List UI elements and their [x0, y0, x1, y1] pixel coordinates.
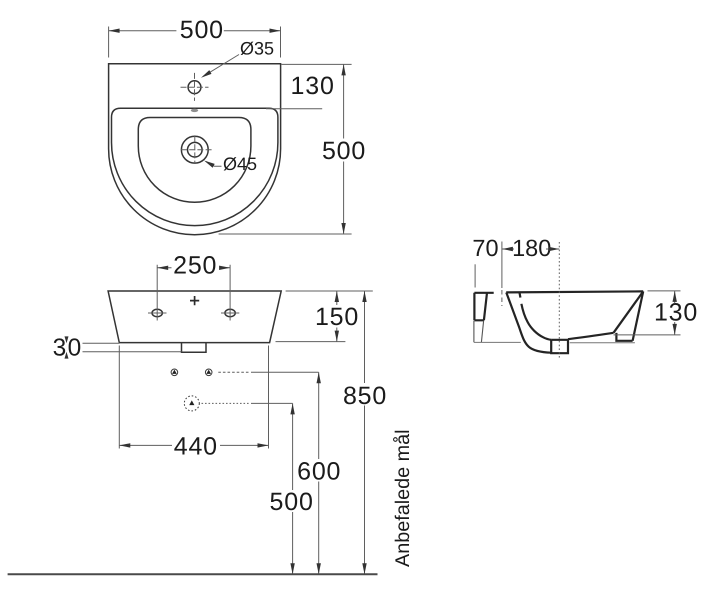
svg-text:500: 500	[322, 137, 366, 165]
svg-text:0: 0	[68, 335, 82, 362]
svg-text:Ø35: Ø35	[240, 39, 274, 59]
svg-text:Anbefalede mål: Anbefalede mål	[392, 430, 414, 567]
svg-text:850: 850	[343, 382, 387, 410]
svg-text:130: 130	[291, 72, 335, 100]
svg-text:500: 500	[270, 488, 314, 516]
svg-text:3: 3	[53, 335, 67, 362]
svg-text:440: 440	[174, 433, 218, 461]
svg-text:600: 600	[297, 458, 341, 486]
svg-text:70: 70	[472, 235, 498, 261]
svg-text:Ø45: Ø45	[223, 154, 257, 174]
svg-text:130: 130	[654, 299, 698, 327]
svg-text:500: 500	[180, 16, 224, 44]
svg-text:180: 180	[512, 235, 551, 261]
svg-text:250: 250	[173, 252, 217, 280]
svg-text:150: 150	[315, 303, 359, 331]
